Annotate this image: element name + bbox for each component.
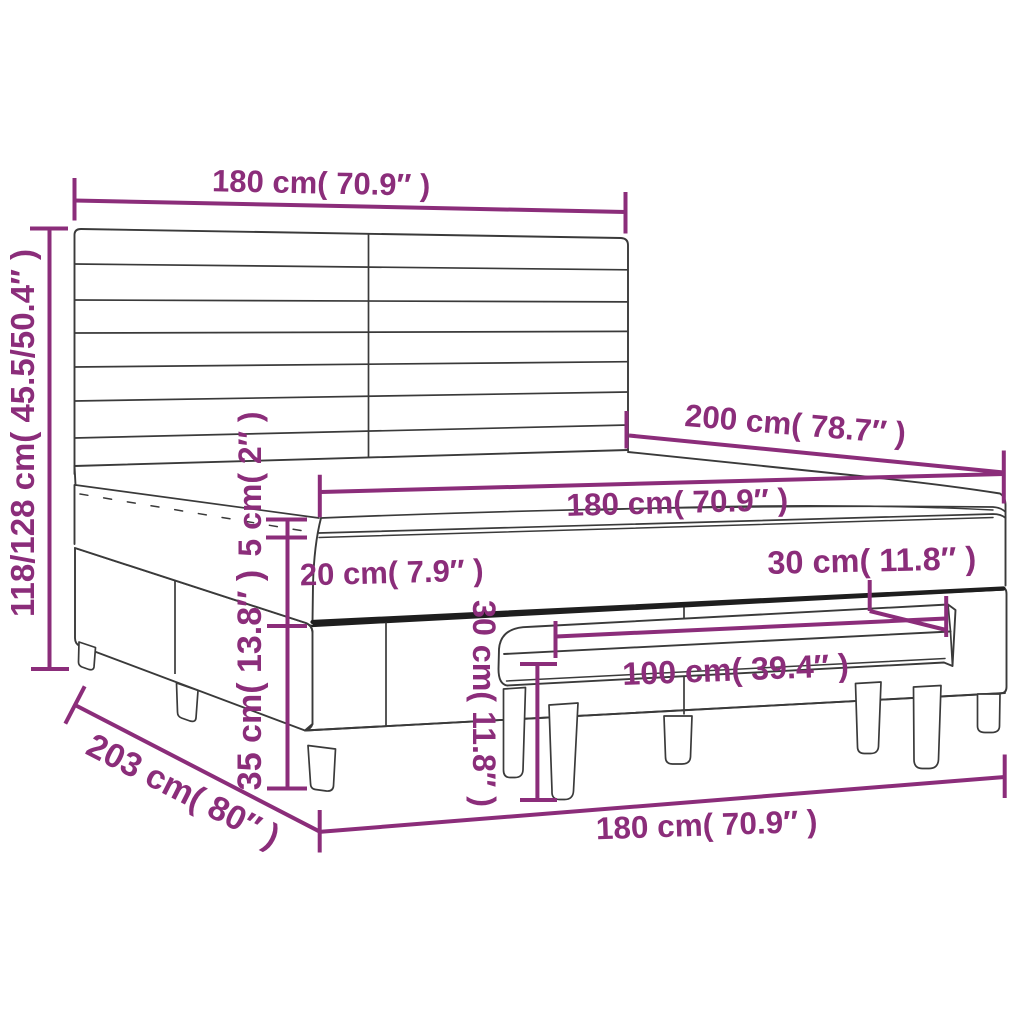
svg-text:30 cm( 11.8″ ): 30 cm( 11.8″ ) (466, 600, 502, 807)
svg-text:20 cm( 7.9″ ): 20 cm( 7.9″ ) (299, 553, 484, 593)
svg-text:30 cm( 11.8″ ): 30 cm( 11.8″ ) (767, 540, 977, 581)
svg-text:180 cm( 70.9″ ): 180 cm( 70.9″ ) (212, 163, 431, 203)
svg-text:118/128 cm( 45.5/50.4″ ): 118/128 cm( 45.5/50.4″ ) (4, 249, 41, 617)
svg-text:180 cm( 70.9″ ): 180 cm( 70.9″ ) (566, 481, 789, 523)
svg-text:5 cm( 2″ ): 5 cm( 2″ ) (232, 411, 268, 556)
svg-text:35 cm( 13.8″ ): 35 cm( 13.8″ ) (231, 570, 269, 790)
